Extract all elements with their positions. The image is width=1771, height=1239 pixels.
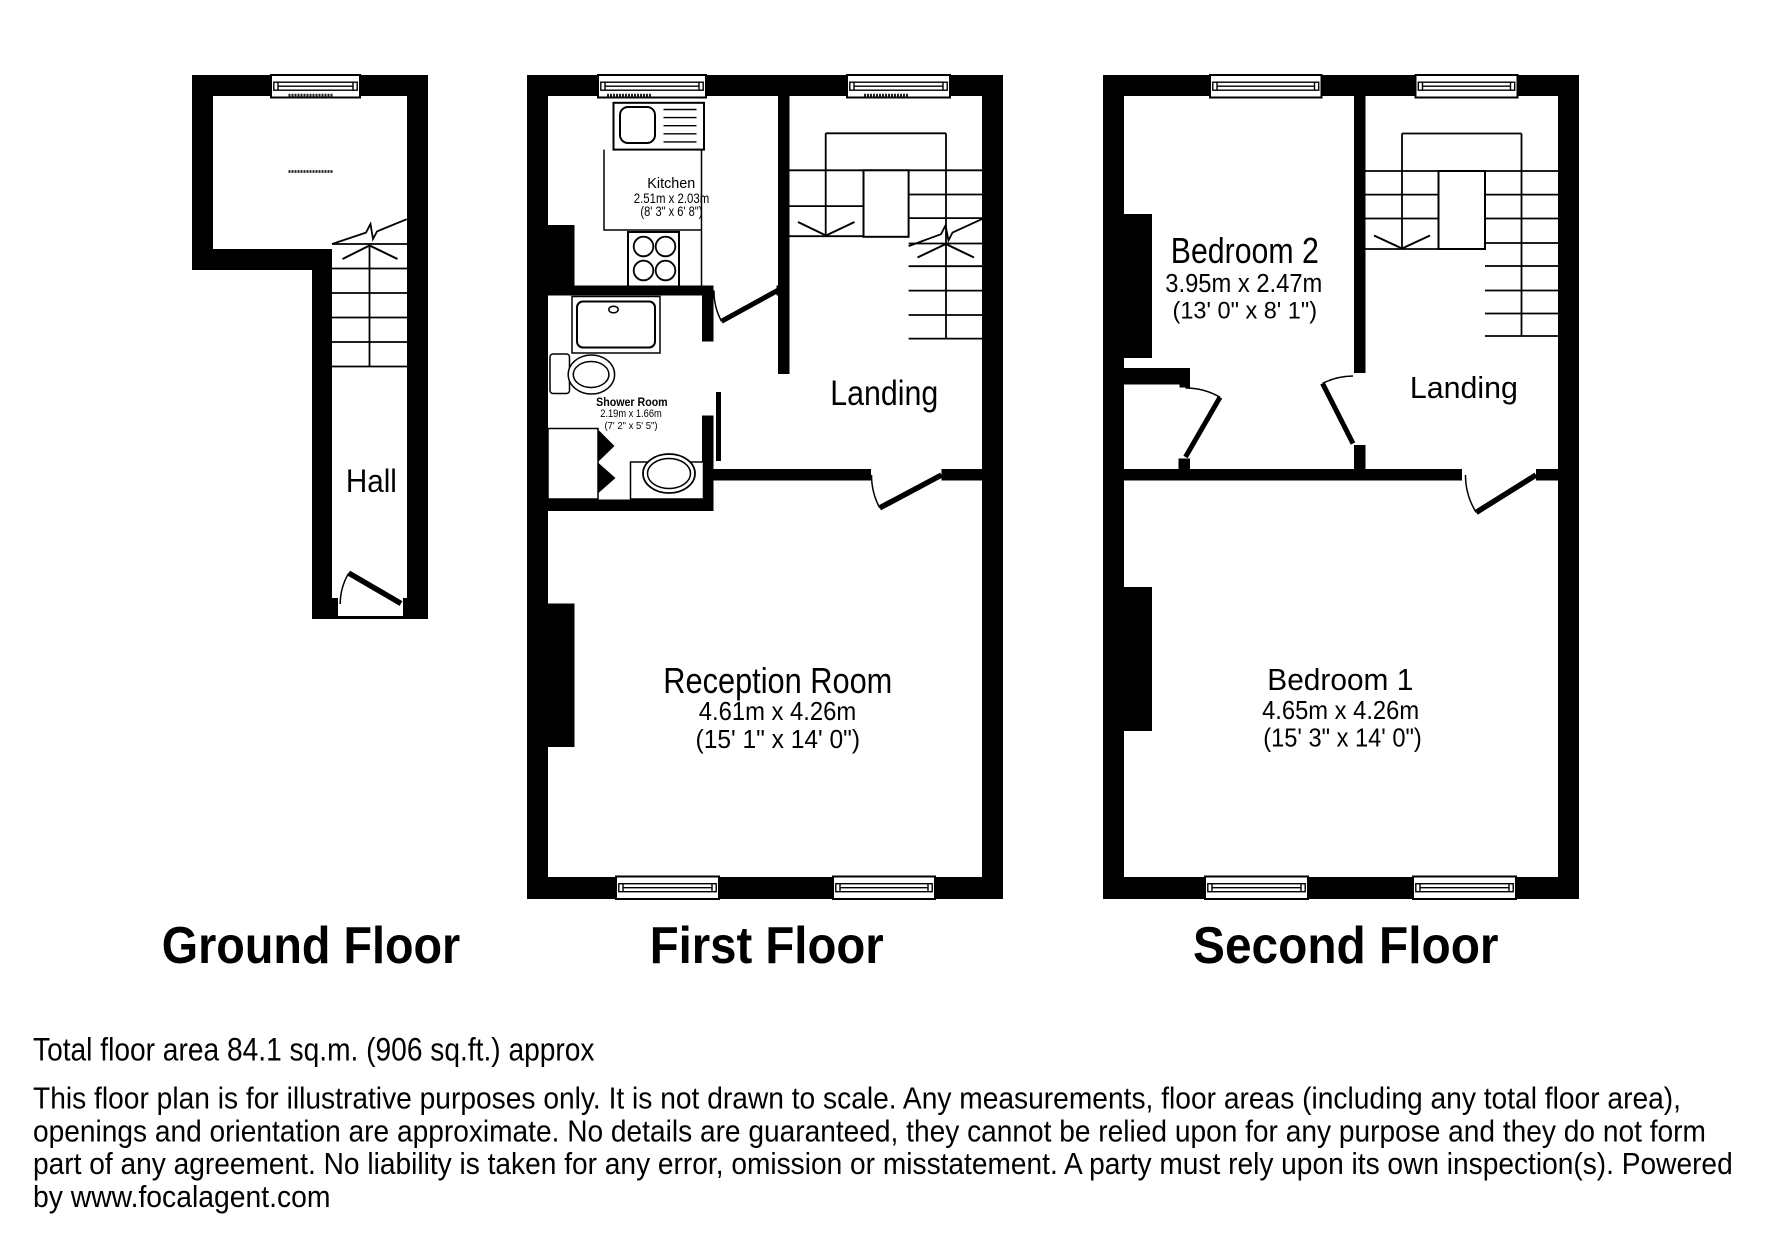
- svg-text:Shower Room: Shower Room: [596, 395, 668, 409]
- svg-text:Bedroom 2: Bedroom 2: [1171, 230, 1319, 271]
- svg-text:4.65m x 4.26m: 4.65m x 4.26m: [1262, 697, 1419, 725]
- svg-text:openings and orientation are a: openings and orientation are approximate…: [33, 1114, 1706, 1148]
- svg-text:(13' 0" x 8' 1"): (13' 0" x 8' 1"): [1173, 298, 1318, 325]
- svg-text:This floor plan is for illustr: This floor plan is for illustrative purp…: [33, 1082, 1681, 1116]
- svg-text:by www.focalagent.com: by www.focalagent.com: [33, 1180, 331, 1214]
- svg-text:Second Floor: Second Floor: [1193, 917, 1499, 975]
- svg-text:2.19m x 1.66m: 2.19m x 1.66m: [600, 408, 662, 420]
- svg-text:Ground Floor: Ground Floor: [162, 917, 461, 975]
- svg-text:(15' 3" x 14' 0"): (15' 3" x 14' 0"): [1263, 725, 1422, 753]
- svg-text:Hall: Hall: [346, 463, 397, 499]
- svg-text:Bedroom 1: Bedroom 1: [1267, 663, 1413, 697]
- svg-text:4.61m x 4.26m: 4.61m x 4.26m: [699, 696, 857, 726]
- svg-text:Reception Room: Reception Room: [663, 660, 892, 701]
- svg-text:Kitchen: Kitchen: [647, 175, 695, 192]
- svg-text:part of any agreement. No liab: part of any agreement. No liability is t…: [33, 1147, 1733, 1181]
- svg-text:3.95m x 2.47m: 3.95m x 2.47m: [1165, 270, 1322, 298]
- svg-text:Landing: Landing: [830, 374, 938, 413]
- svg-text:Landing: Landing: [1410, 370, 1518, 405]
- svg-text:(8' 3" x 6' 8"): (8' 3" x 6' 8"): [640, 204, 702, 219]
- svg-text:(7' 2" x 5' 5"): (7' 2" x 5' 5"): [605, 420, 658, 432]
- svg-text:(15' 1" x 14' 0"): (15' 1" x 14' 0"): [696, 726, 861, 754]
- svg-text:First Floor: First Floor: [650, 917, 884, 975]
- svg-text:Total floor area 84.1 sq.m. (9: Total floor area 84.1 sq.m. (906 sq.ft.)…: [33, 1030, 595, 1067]
